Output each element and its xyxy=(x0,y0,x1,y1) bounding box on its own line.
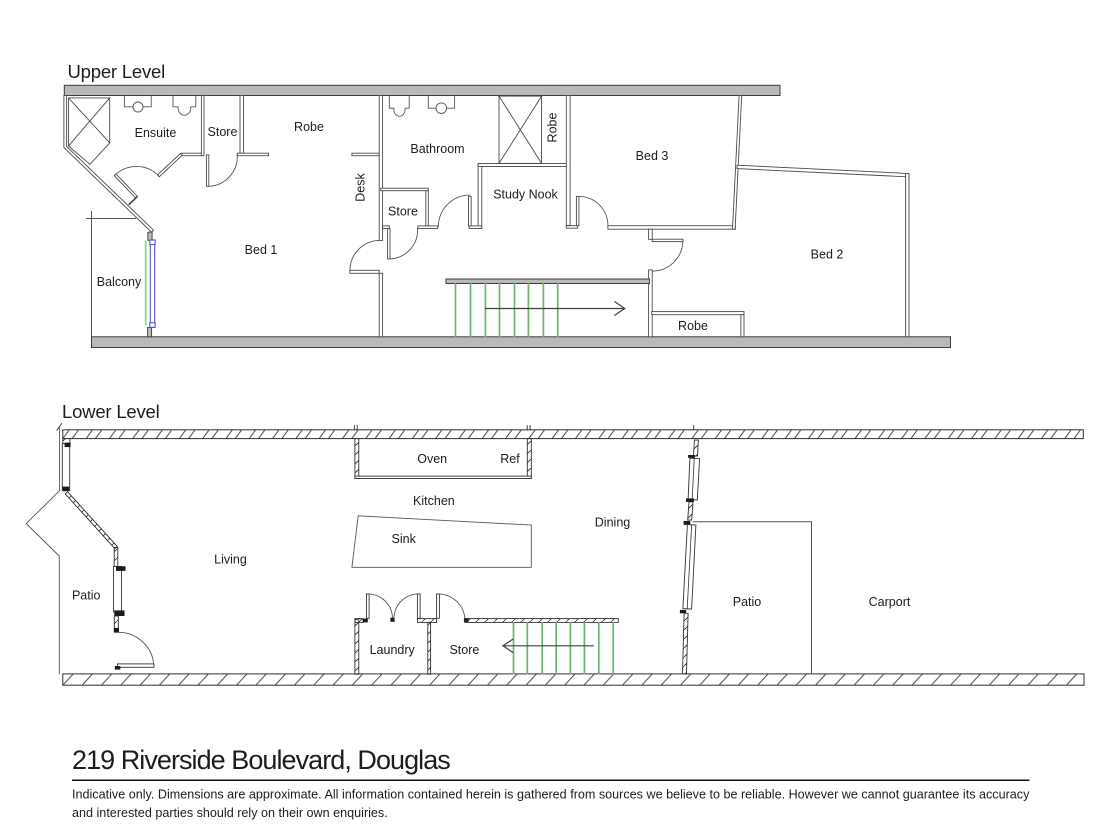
svg-text:Laundry: Laundry xyxy=(370,643,416,657)
svg-text:Indicative only. Dimensions ar: Indicative only. Dimensions are approxim… xyxy=(72,787,1030,801)
svg-text:Oven: Oven xyxy=(417,452,447,466)
svg-text:Store: Store xyxy=(208,125,238,139)
svg-text:Patio: Patio xyxy=(72,588,101,602)
svg-text:Lower Level: Lower Level xyxy=(62,401,160,422)
svg-text:Robe: Robe xyxy=(546,113,560,143)
svg-text:Store: Store xyxy=(449,643,479,657)
svg-text:Ref: Ref xyxy=(500,452,520,466)
svg-text:Robe: Robe xyxy=(678,319,708,333)
svg-text:Kitchen: Kitchen xyxy=(413,494,455,508)
svg-text:Study Nook: Study Nook xyxy=(493,188,558,202)
svg-text:Living: Living xyxy=(214,552,247,566)
svg-text:Ensuite: Ensuite xyxy=(135,126,177,140)
svg-text:Bed 1: Bed 1 xyxy=(245,243,278,257)
svg-text:Dining: Dining xyxy=(595,515,630,529)
svg-text:Bed 2: Bed 2 xyxy=(811,248,844,262)
svg-text:Desk: Desk xyxy=(354,173,368,202)
svg-text:Store: Store xyxy=(388,205,418,219)
svg-text:Balcony: Balcony xyxy=(97,275,142,289)
svg-text:Bed 3: Bed 3 xyxy=(636,149,669,163)
svg-text:219 Riverside Boulevard, Dougl: 219 Riverside Boulevard, Douglas xyxy=(72,745,450,775)
svg-text:Sink: Sink xyxy=(392,532,417,546)
svg-text:Carport: Carport xyxy=(869,595,911,609)
svg-text:Robe: Robe xyxy=(294,120,324,134)
svg-text:Upper Level: Upper Level xyxy=(68,61,166,82)
svg-text:Bathroom: Bathroom xyxy=(410,142,464,156)
svg-text:Patio: Patio xyxy=(733,595,762,609)
svg-text:and interested parties should: and interested parties should rely on th… xyxy=(72,806,388,820)
